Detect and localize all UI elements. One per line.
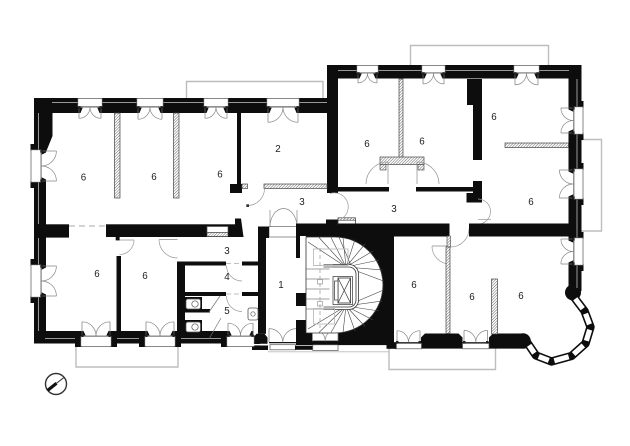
svg-text:1: 1 — [278, 280, 283, 291]
svg-text:6: 6 — [142, 271, 148, 282]
svg-text:6: 6 — [411, 280, 417, 291]
svg-text:6: 6 — [94, 269, 100, 280]
svg-text:6: 6 — [364, 139, 370, 150]
svg-text:6: 6 — [151, 172, 157, 183]
svg-text:3: 3 — [299, 197, 305, 208]
svg-text:6: 6 — [469, 292, 475, 303]
svg-text:3: 3 — [391, 204, 397, 215]
svg-text:6: 6 — [81, 173, 87, 184]
svg-text:6: 6 — [217, 170, 223, 181]
svg-text:3: 3 — [224, 246, 230, 257]
svg-text:5: 5 — [224, 306, 230, 317]
svg-text:6: 6 — [491, 112, 497, 123]
svg-text:6: 6 — [419, 137, 425, 148]
svg-text:6: 6 — [528, 197, 534, 208]
svg-text:6: 6 — [518, 291, 524, 302]
svg-text:2: 2 — [275, 144, 280, 155]
svg-text:4: 4 — [224, 272, 230, 283]
